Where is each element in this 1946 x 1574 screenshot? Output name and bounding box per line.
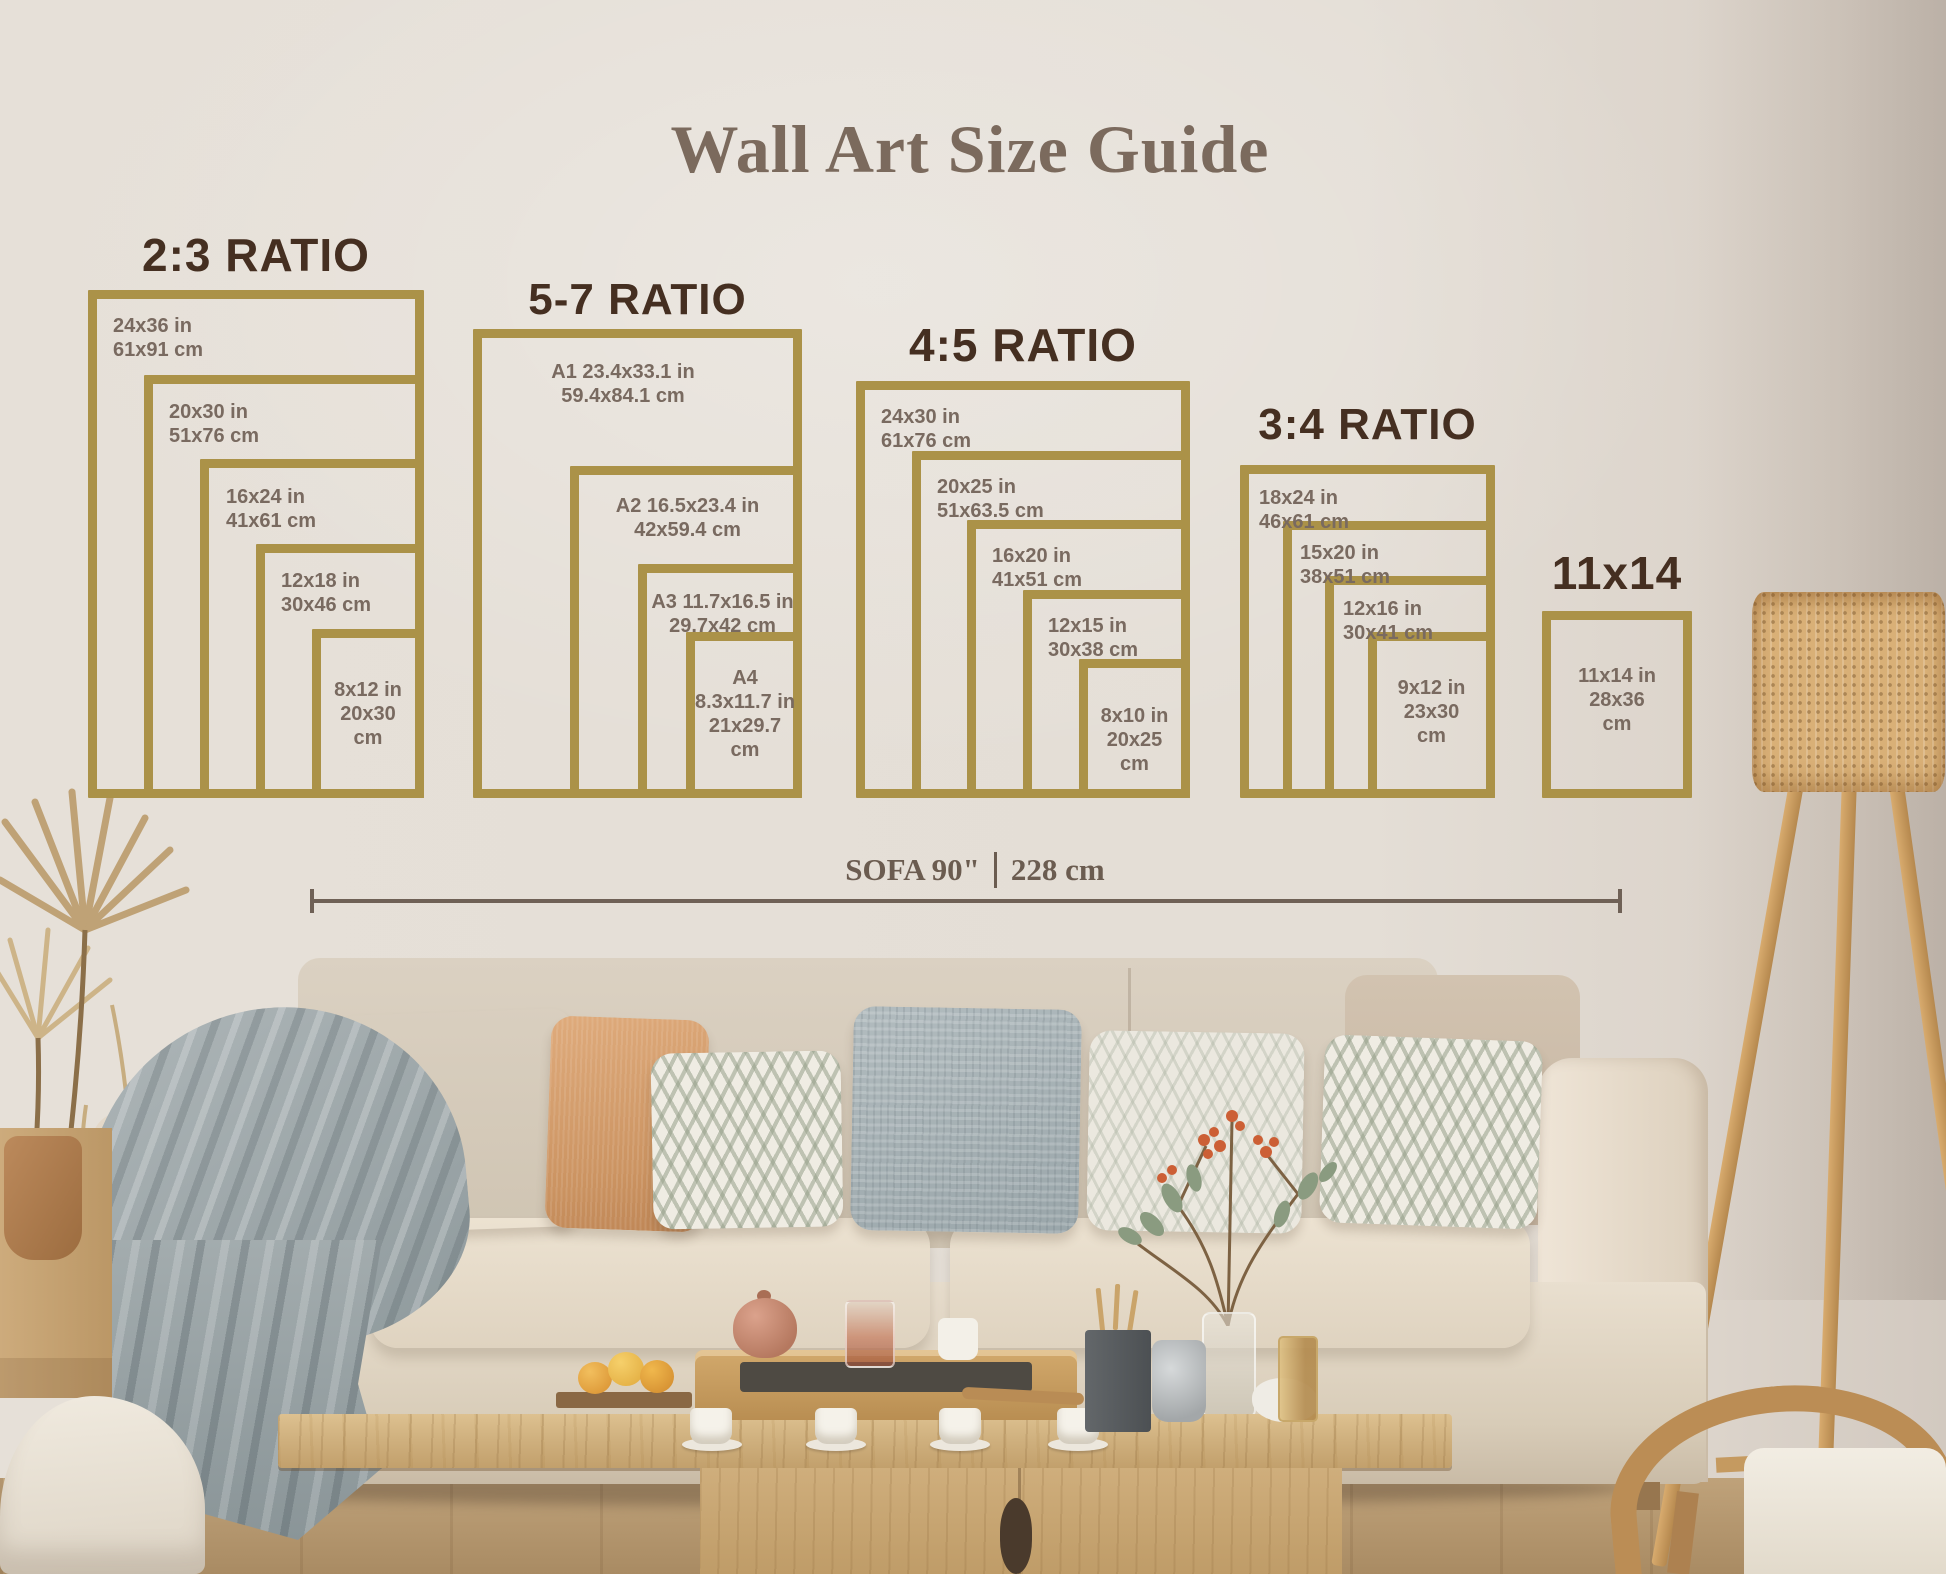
teacup-1 xyxy=(690,1408,732,1444)
ratio-5-7-title: 5-7 RATIO xyxy=(473,278,802,322)
coffee-table-handle-slot xyxy=(1000,1498,1032,1574)
size-label-a1: A1 23.4x33.1 in 59.4x84.1 cm xyxy=(488,360,758,408)
terracotta-vase xyxy=(4,1136,82,1260)
tray-cup xyxy=(938,1318,978,1360)
size-label-16x20: 16x20 in 41x51 cm xyxy=(992,544,1082,592)
sofa-measure-imperial: SOFA 90" xyxy=(845,852,980,888)
size-label-16x24: 16x24 in 41x61 cm xyxy=(226,485,316,533)
ratio-4-5-title: 4:5 RATIO xyxy=(856,322,1190,368)
size-label-12x18: 12x18 in 30x46 cm xyxy=(281,569,371,617)
size-label-9x12: 9x12 in 23x30 cm xyxy=(1372,676,1491,748)
size-label-a2: A2 16.5x23.4 in 42x59.4 cm xyxy=(580,494,795,542)
measure-tick-left xyxy=(310,889,314,913)
gold-glass-cylinder xyxy=(1278,1336,1318,1422)
pillow-knit-gray xyxy=(850,1006,1082,1234)
utensil-holder xyxy=(1085,1330,1151,1432)
armchair-cushion xyxy=(1744,1448,1946,1574)
size-label-20x30: 20x30 in 51x76 cm xyxy=(169,400,259,448)
measure-divider xyxy=(994,852,997,888)
berry-branch-arrangement xyxy=(1060,1086,1380,1326)
size-label-11x14: 11x14 in 28x36 cm xyxy=(1546,664,1688,736)
pillow-chevron-left xyxy=(650,1050,843,1229)
teacup-3 xyxy=(939,1408,981,1444)
coffee-table-top xyxy=(278,1414,1452,1468)
size-label-24x30: 24x30 in 61x76 cm xyxy=(881,405,971,453)
measure-tick-right xyxy=(1618,889,1622,913)
rattan-lamp-shade xyxy=(1752,592,1945,792)
size-label-18x24: 18x24 in 46x61 cm xyxy=(1259,486,1349,534)
size-label-a3: A3 11.7x16.5 in 29.7x42 cm xyxy=(645,590,800,638)
ratio-2-3-title: 2:3 RATIO xyxy=(88,232,424,278)
size-label-24x36: 24x36 in 61x91 cm xyxy=(113,314,203,362)
size-label-8x10: 8x10 in 20x25 cm xyxy=(1083,704,1186,776)
hammered-silver-jar xyxy=(1152,1340,1206,1422)
wood-serving-board xyxy=(556,1392,692,1408)
teacup-2 xyxy=(815,1408,857,1444)
size-label-a4: A4 8.3x11.7 in 21x29.7 cm xyxy=(691,666,799,762)
page-title: Wall Art Size Guide xyxy=(420,110,1520,189)
ratio-11x14-title: 11x14 xyxy=(1542,550,1692,596)
size-label-20x25: 20x25 in 51x63.5 cm xyxy=(937,475,1044,523)
fruit-orange-3 xyxy=(640,1360,674,1393)
glass-vase xyxy=(1202,1312,1256,1418)
sofa-measure-label: SOFA 90" 228 cm xyxy=(810,852,1140,888)
fruit-orange-2 xyxy=(608,1352,644,1386)
size-label-15x20: 15x20 in 38x51 cm xyxy=(1300,541,1390,589)
sofa-measure-metric: 228 cm xyxy=(1011,852,1105,888)
clay-teapot xyxy=(733,1298,797,1358)
sofa-measure-line xyxy=(310,899,1622,903)
fruit-orange-1 xyxy=(578,1362,612,1394)
size-label-12x15: 12x15 in 30x38 cm xyxy=(1048,614,1138,662)
size-label-8x12: 8x12 in 20x30 cm xyxy=(316,678,420,750)
glass-tea-jar xyxy=(845,1300,895,1368)
wall-art-size-guide-scene: Wall Art Size Guide 2:3 RATIO 24x36 in 6… xyxy=(0,0,1946,1574)
size-label-12x16: 12x16 in 30x41 cm xyxy=(1343,597,1433,645)
ratio-3-4-title: 3:4 RATIO xyxy=(1240,403,1495,447)
